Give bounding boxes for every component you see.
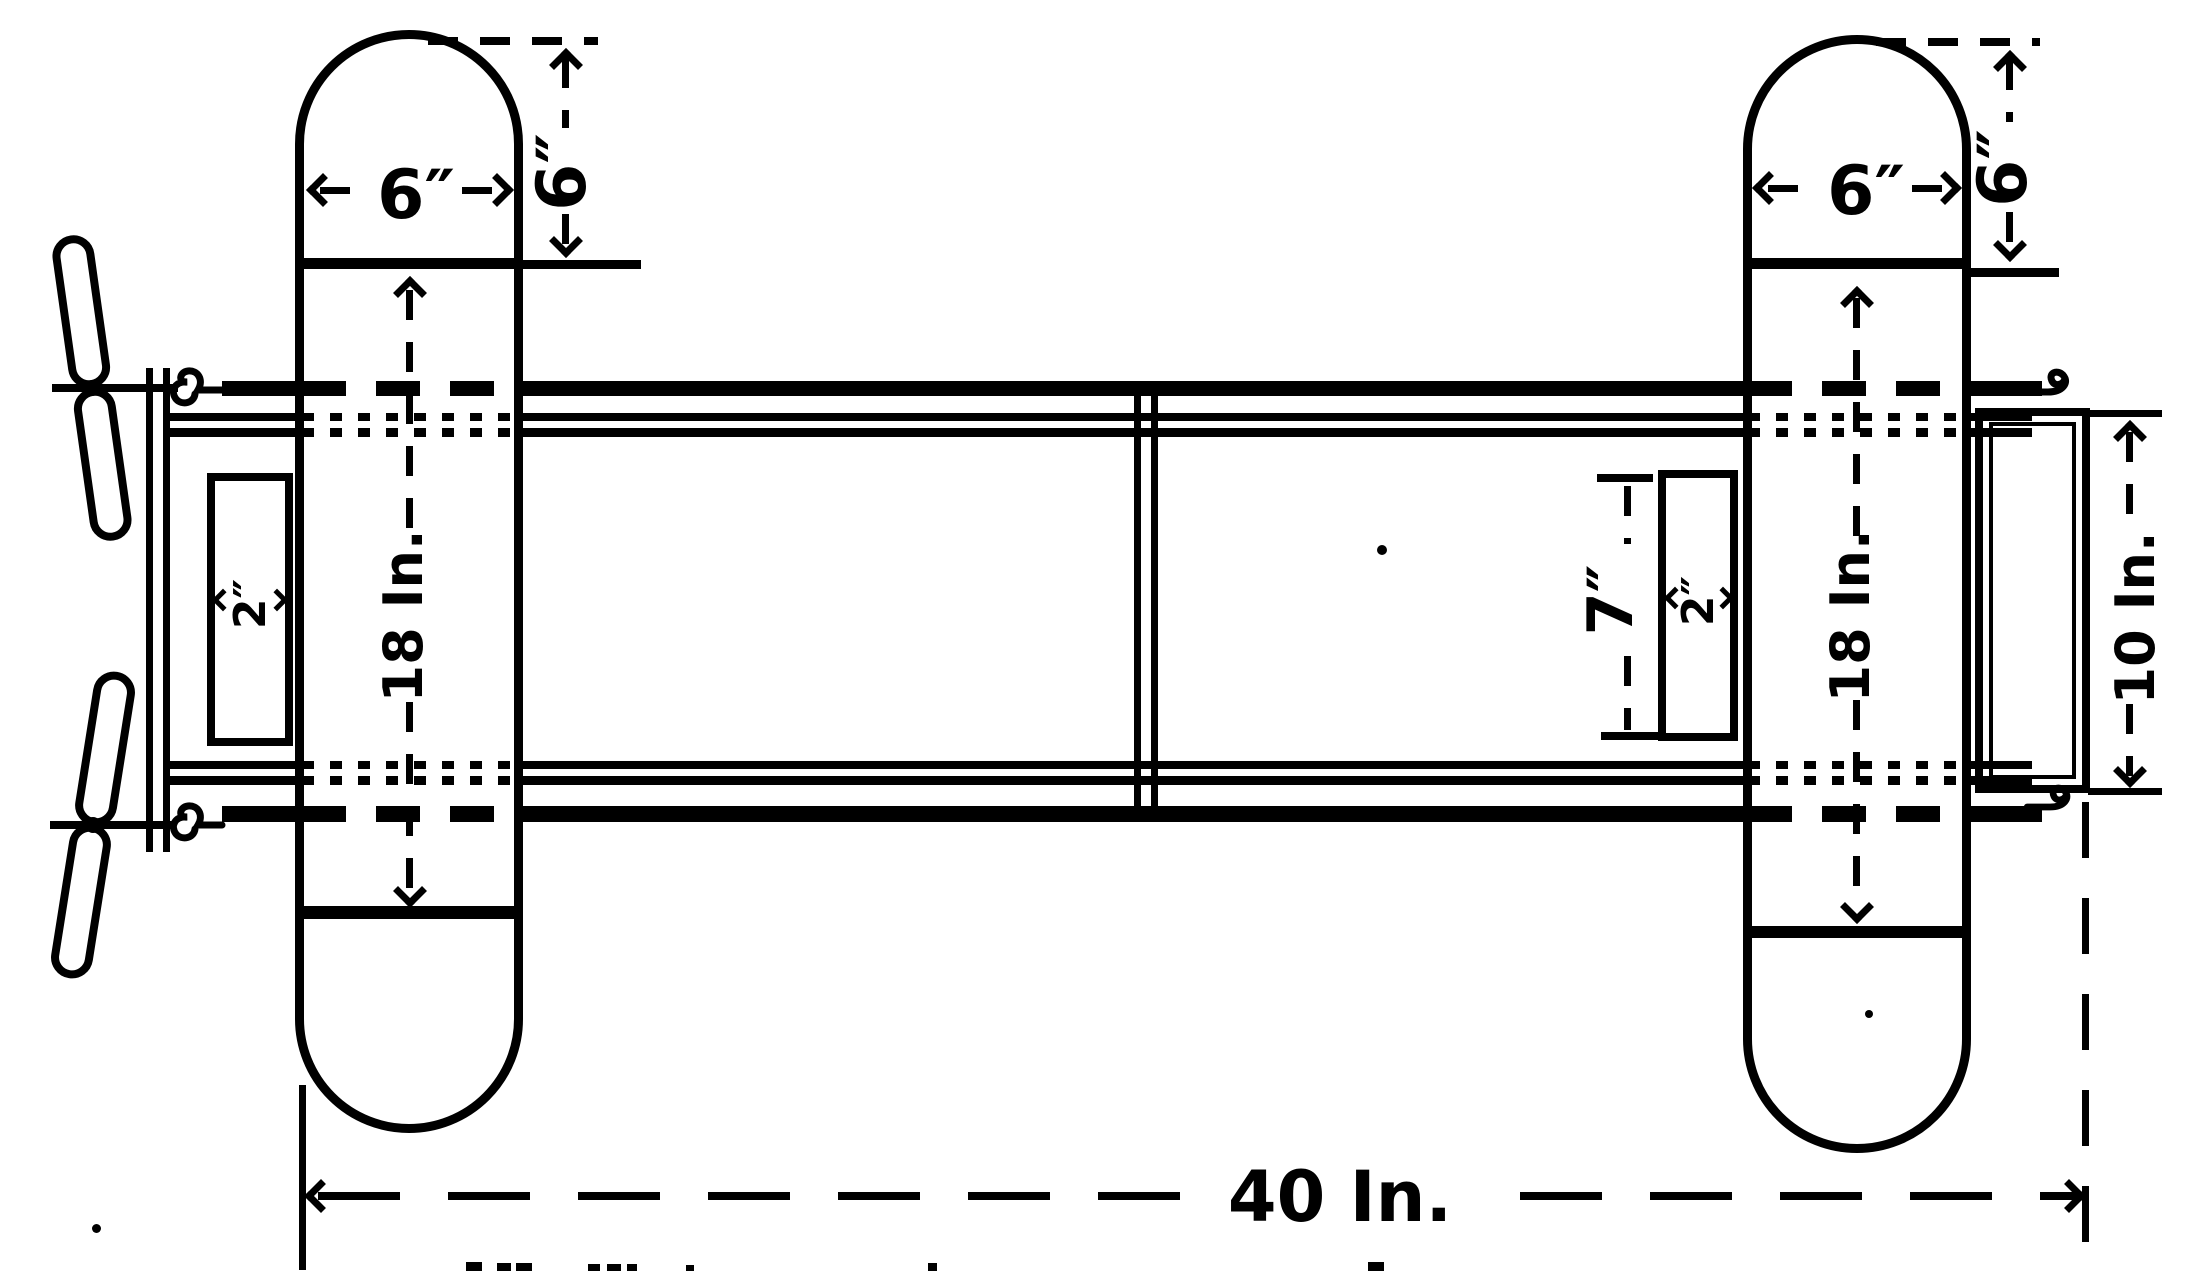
propeller-top [28, 228, 178, 558]
caption-fragment [588, 1264, 600, 1271]
dim-overall-arrow-right [2052, 1179, 2086, 1213]
dim-elevator-arrow-up [2113, 420, 2147, 454]
bottom-rubber-b-left [170, 776, 302, 785]
top-stick-left [222, 381, 302, 396]
ink-dot [92, 1224, 101, 1233]
dim-overall-line-b [1520, 1192, 2078, 1200]
dim-strut-line-b [1624, 656, 1631, 730]
right-plane-rear-spar [1748, 926, 1966, 938]
top-rubber-b-middle [518, 428, 1748, 437]
elevator-inner-line [1989, 422, 2076, 779]
dim-right-block-label: 2″ [1674, 566, 1724, 636]
hook-bottom-left [158, 798, 228, 854]
top-stick-middle [518, 381, 1748, 396]
dim-overall-line-a [318, 1192, 1188, 1200]
dim-right-tip-arrow-down [1993, 228, 2027, 262]
dim-strut-line-a [1624, 486, 1631, 544]
bottom-stick-middle [518, 806, 1748, 822]
left-plane-front-spar [300, 258, 518, 269]
dim-right-span-line-a [1853, 298, 1860, 538]
hook-top-right [2022, 368, 2082, 416]
dim-right-chord-label: 6″ [1826, 152, 1906, 232]
propeller-bottom [24, 660, 176, 998]
dim-left-tip-arrow-down [549, 224, 583, 258]
right-plane-front-spar [1748, 258, 1966, 269]
bottom-rubber-b-middle [518, 776, 1748, 785]
dim-left-span-line-b [406, 702, 413, 892]
left-chord-extension [523, 260, 641, 269]
bottom-stick-left [222, 806, 302, 822]
bottom-rubber-a-left [170, 761, 302, 769]
dim-right-tip-arrow-up [1993, 50, 2027, 84]
dim-strut-cap-top [1597, 474, 1653, 482]
right-chord-extension [1971, 268, 2059, 277]
dim-left-span-label: 18 In. [372, 531, 436, 701]
dim-left-tip-arrow-up [549, 48, 583, 82]
top-rubber-b-left [170, 428, 302, 437]
dim-elevator-label: 10 In. [2104, 533, 2168, 703]
caption-fragment [497, 1263, 511, 1271]
dim-elevator-ext-bottom [2088, 788, 2162, 795]
ink-dot [1865, 1010, 1873, 1018]
dim-right-span-label: 18 In. [1819, 531, 1883, 701]
dim-overall-ext-left [299, 1085, 306, 1270]
dim-elevator-arrow-down [2113, 754, 2147, 788]
dim-overall-arrow-left [304, 1179, 338, 1213]
caption-fragment [627, 1264, 637, 1271]
caption-fragment [928, 1263, 937, 1271]
dim-strut-cap-bottom [1601, 732, 1659, 740]
hook-bottom-right [2024, 784, 2084, 830]
bottom-rubber-a-middle [518, 761, 1748, 769]
model-aeroplane-plan-drawing: 6″ 6″ 18 In. 2″ 6″ 6″ 18 In. 7″ 2″ [0, 0, 2210, 1271]
caption-fragment [607, 1264, 621, 1271]
dim-right-tip-connector [1876, 38, 2040, 46]
dim-left-span-line-a [406, 290, 413, 530]
caption-fragment [686, 1265, 694, 1271]
dim-left-tip-label: 6″ [523, 132, 603, 212]
dim-elevator-ext-top [2088, 410, 2162, 417]
dim-left-chord-label: 6″ [376, 156, 456, 236]
dim-left-block-label: 2″ [226, 569, 276, 639]
hook-top-left [158, 364, 228, 418]
ink-dot [1377, 545, 1387, 555]
top-rubber-a-middle [518, 413, 1748, 421]
dim-strut-label: 7″ [1571, 560, 1651, 640]
caption-fragment [466, 1262, 482, 1271]
center-strut [1134, 396, 1158, 812]
dim-overall-ext-right [2082, 802, 2089, 1260]
caption-fragment [1368, 1262, 1384, 1271]
dim-left-tip-connector [428, 37, 598, 45]
caption-fragment [516, 1263, 532, 1271]
dim-overall-label: 40 In. [1210, 1157, 1470, 1237]
dim-right-span-line-b [1853, 700, 1860, 896]
dim-right-tip-label: 6″ [1964, 128, 2044, 208]
